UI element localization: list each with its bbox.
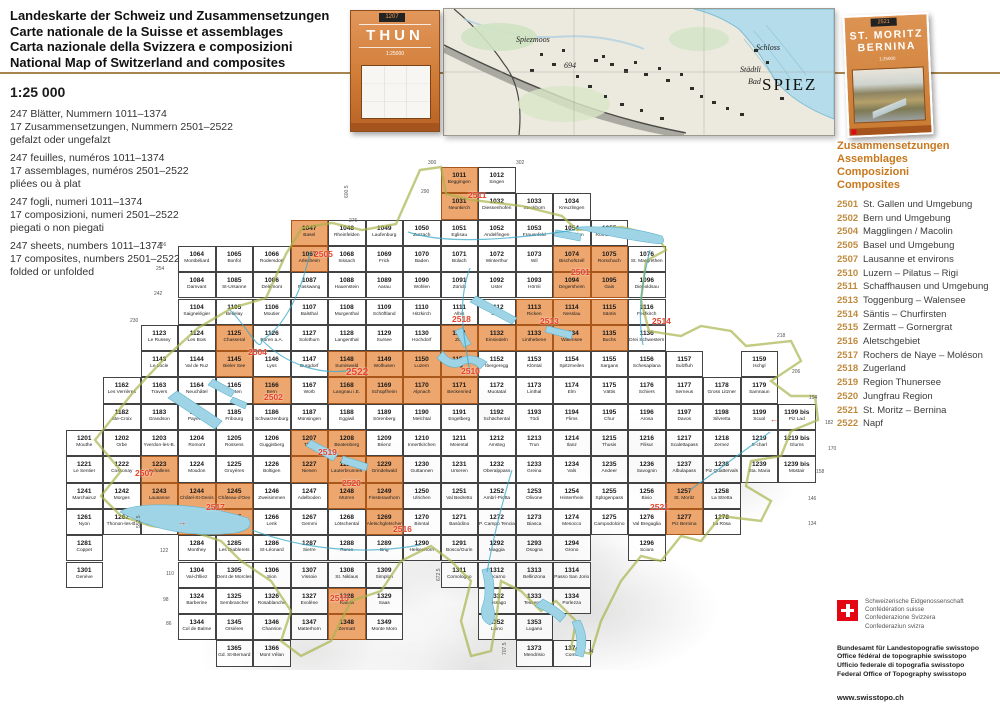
sheet-cell-1071: 1071Bülach bbox=[441, 246, 479, 272]
composite-list-item: 2514Säntis – Churfirsten bbox=[837, 308, 989, 322]
excerpt-graphics bbox=[444, 9, 834, 135]
sheet-number: 1213 bbox=[517, 435, 553, 443]
sheet-name: Hauenstein bbox=[329, 285, 365, 291]
swiss-flag-icon bbox=[851, 129, 856, 134]
sheet-cell-1105: 1105Bellelay bbox=[216, 299, 254, 325]
composite-name: Bern und Umgebung bbox=[863, 213, 951, 224]
sheet-number: 1247 bbox=[292, 488, 328, 496]
sheet-name: Lenk bbox=[254, 522, 290, 528]
sheet-cell-1254: 1254Hinterrhein bbox=[553, 483, 591, 509]
sheet-number: 1186 bbox=[254, 409, 290, 417]
sheet-cell-1373: 1373Mendrisio bbox=[516, 640, 554, 666]
composite-number: 2501 bbox=[837, 198, 863, 212]
sheet-name: Lötschental bbox=[329, 522, 365, 528]
sheet-name: Ricken bbox=[517, 312, 553, 318]
excerpt-place-label: SPIEZ bbox=[762, 75, 817, 95]
sheet-cell-1109: 1109Schöftland bbox=[366, 299, 404, 325]
sheet-cell-1187: 1187Münsingen bbox=[291, 404, 329, 430]
composite-number: 2519 bbox=[837, 376, 863, 390]
sheet-name: Langenthal bbox=[329, 338, 365, 344]
sheet-cell-1196: 1196Arosa bbox=[628, 404, 666, 430]
sheet-name: Bern bbox=[254, 390, 290, 396]
sheet-name: Col de Balme bbox=[179, 627, 215, 633]
sheet-number: 1191 bbox=[442, 409, 478, 417]
sheet-name: Beatenberg bbox=[329, 443, 365, 449]
sheet-cell-1296: 1296Sciora bbox=[628, 535, 666, 561]
sheet-number: 1261 bbox=[67, 514, 103, 522]
sheet-number: 1219 bis bbox=[779, 435, 815, 443]
cover-photo-mountain-river bbox=[852, 66, 926, 123]
sheet-name: Sumiswald bbox=[329, 364, 365, 370]
sheet-number: 1157 bbox=[667, 356, 703, 364]
sheet-cell-1167: 1167Worb bbox=[291, 377, 329, 403]
sheet-number: 1050 bbox=[404, 225, 440, 233]
sheet-cell-1221: 1221Le Sentier bbox=[66, 456, 104, 482]
sheet-number: 1130 bbox=[404, 330, 440, 338]
sheet-name: Bischofszell bbox=[554, 259, 590, 265]
sheet-cell-1275: 1275Campodolcino bbox=[591, 509, 629, 535]
sheet-number: 1217 bbox=[667, 435, 703, 443]
sheet-cell-1174: 1174Elm bbox=[553, 377, 591, 403]
composite-list-item: 2501St. Gallen und Umgebung bbox=[837, 198, 989, 212]
sheet-name: Neunkirch bbox=[442, 206, 478, 212]
sheet-number: 1287 bbox=[292, 540, 328, 548]
cover-number-tab: 1207 bbox=[379, 13, 405, 22]
sheet-number: 1131 bbox=[442, 330, 478, 338]
sheet-cell-1213: 1213Trun bbox=[516, 430, 554, 456]
sheet-name: Urseren bbox=[442, 469, 478, 475]
sheet-number: 1278 bbox=[704, 514, 740, 522]
sheet-cell-1227: 1227Niesen bbox=[291, 456, 329, 482]
sheet-name: Hitzkirch bbox=[404, 312, 440, 318]
sheet-number: 1296 bbox=[629, 540, 665, 548]
sheet-cell-1199: 1199Scuol bbox=[741, 404, 779, 430]
sheet-name: Uster bbox=[479, 285, 515, 291]
sheet-count-fr: 247 feuilles, numéros 1011–137417 assemb… bbox=[10, 152, 340, 191]
sheet-name: Val Bedretto bbox=[442, 496, 478, 502]
sheet-number: 1328 bbox=[329, 593, 365, 601]
sheet-name: Adelboden bbox=[292, 496, 328, 502]
sheet-name: Basel bbox=[292, 233, 328, 239]
sheet-cell-1114: 1114Nesslau bbox=[553, 299, 591, 325]
sheet-cell-1277: 1277Piz Bernina bbox=[666, 509, 704, 535]
sheet-number: 1192 bbox=[479, 409, 515, 417]
sheet-name: Sursee bbox=[367, 338, 403, 344]
sheet-cell-1070: 1070Baden bbox=[403, 246, 441, 272]
sheet-number: 1143 bbox=[142, 356, 178, 364]
sheet-name: Scalettapass bbox=[667, 443, 703, 449]
sheet-cell-1265: 1265Les Mosses bbox=[216, 509, 254, 535]
sheet-cell-1067: 1067Arlesheim bbox=[291, 246, 329, 272]
sheet-cell-1128: 1128Langenthal bbox=[328, 325, 366, 351]
sheet-cell-1087: 1087Passwang bbox=[291, 272, 329, 298]
sheet-name: Marchairuz bbox=[67, 496, 103, 502]
sheet-number: 1271 bbox=[442, 514, 478, 522]
sheet-name: Splügenpass bbox=[592, 496, 628, 502]
sheet-number: 1196 bbox=[629, 409, 665, 417]
sheet-number: 1127 bbox=[292, 330, 328, 338]
sheet-number: 1252 bbox=[479, 488, 515, 496]
sheet-cell-1270: 1270Binntal bbox=[403, 509, 441, 535]
sheet-cell-1231: 1231Urseren bbox=[441, 456, 479, 482]
sheet-cell-1150: 1150Luzern bbox=[403, 351, 441, 377]
composite-number: 2513 bbox=[837, 294, 863, 308]
composite-number: 2502 bbox=[837, 212, 863, 226]
sheet-cell-1258: 1258La Stretta bbox=[703, 483, 741, 509]
sheet-cell-1110: 1110Hitzkirch bbox=[403, 299, 441, 325]
cover-rule bbox=[359, 24, 431, 25]
sheet-name: Brissago bbox=[479, 601, 515, 607]
sheet-number: 1048 bbox=[329, 225, 365, 233]
sheet-cell-1125: 1125Chasseral bbox=[216, 325, 254, 351]
cover-bottom-band bbox=[351, 123, 439, 131]
sheet-cell-1089: 1089Aarau bbox=[366, 272, 404, 298]
sheet-name: Passo San Jorio bbox=[554, 575, 590, 581]
sheet-cell-1276: 1276Val Bregaglia bbox=[628, 509, 666, 535]
sheet-number: 1268 bbox=[329, 514, 365, 522]
sheet-number: 1332 bbox=[479, 593, 515, 601]
sheet-cell-1333: 1333Tesserete bbox=[516, 588, 554, 614]
sheet-name: Thun bbox=[292, 443, 328, 449]
sheet-cell-1130: 1130Hochdorf bbox=[403, 325, 441, 351]
composite-name: Luzern – Pilatus – Rigi bbox=[863, 268, 958, 279]
sheet-number: 1075 bbox=[592, 251, 628, 259]
sheet-cell-1047: 1047Basel bbox=[291, 220, 329, 246]
field bbox=[669, 27, 729, 51]
sheet-name: Vissoie bbox=[292, 575, 328, 581]
sheet-name: Zernez bbox=[704, 443, 740, 449]
sheet-cell-1053: 1053Frauenfeld bbox=[516, 220, 554, 246]
text-line: Ufficio federale di topografia swisstopo bbox=[837, 662, 997, 671]
sheet-cell-1218: 1218Zernez bbox=[703, 430, 741, 456]
sheet-cell-1086: 1086Delémont bbox=[253, 272, 291, 298]
sheet-cell-1349: 1349Monte Moro bbox=[366, 614, 404, 640]
sheet-cell-1197: 1197Davos bbox=[666, 404, 704, 430]
sheet-cell-1209: 1209Brienz bbox=[366, 430, 404, 456]
sheet-cell-1301: 1301Genève bbox=[66, 562, 104, 588]
sheet-number: 1265 bbox=[217, 514, 253, 522]
sheet-name: Vals bbox=[554, 469, 590, 475]
sheet-cell-1278: 1278La Rösa bbox=[703, 509, 741, 535]
sheet-cell-1129: 1129Sursee bbox=[366, 325, 404, 351]
sheet-cell-1208: 1208Beatenberg bbox=[328, 430, 366, 456]
composite-name: Napf bbox=[863, 418, 883, 429]
sheet-number: 1313 bbox=[517, 567, 553, 575]
sheet-number: 1199 bbox=[742, 409, 778, 417]
sheet-number: 1113 bbox=[517, 304, 553, 312]
sheet-cell-1185: 1185Fribourg bbox=[216, 404, 254, 430]
sheet-name: Steckborn bbox=[517, 206, 553, 212]
sheet-name: Schüpfheim bbox=[367, 390, 403, 396]
sheet-cell-1198: 1198Silvretta bbox=[703, 404, 741, 430]
sheet-number: 1212 bbox=[479, 435, 515, 443]
sheet-name: La Rösa bbox=[704, 522, 740, 528]
sheet-number: 1266 bbox=[254, 514, 290, 522]
sheet-name: Piz Lad bbox=[779, 417, 815, 423]
text-line: Bundesamt für Landestopografie swisstopo bbox=[837, 645, 997, 654]
sheet-name: Gross Litzner bbox=[704, 390, 740, 396]
sheet-name: Barberine bbox=[179, 601, 215, 607]
text-line: Composites bbox=[837, 179, 949, 192]
map-excerpt-spiez: Spiezmoos694SchlossStädtliBadSPIEZ bbox=[443, 8, 835, 136]
sheet-cell-1348: 1348Zermatt bbox=[328, 614, 366, 640]
sheet-name: P. Campo Tencia bbox=[479, 522, 515, 528]
sheet-cell-1255: 1255Splügenpass bbox=[591, 483, 629, 509]
composite-name: Säntis – Churfirsten bbox=[863, 309, 946, 320]
sheet-name: Neuchâtel bbox=[179, 390, 215, 396]
sheet-name: Binntal bbox=[404, 522, 440, 528]
sheet-cell-1294: 1294Grono bbox=[553, 535, 591, 561]
sheet-number: 1272 bbox=[479, 514, 515, 522]
sheet-cell-1202: 1202Orbe bbox=[103, 430, 141, 456]
sheet-cell-1072: 1072Winterthur bbox=[478, 246, 516, 272]
sheet-cell-1219: 1219S-charl bbox=[741, 430, 779, 456]
sheet-name: Guggisberg bbox=[254, 443, 290, 449]
sheet-name: Piz Quattervals bbox=[704, 469, 740, 475]
sheet-cell-1235: 1235Andeer bbox=[591, 456, 629, 482]
sheet-cell-1126: 1126Büren a.A. bbox=[253, 325, 291, 351]
sheet-cell-1256: 1256Bivio bbox=[628, 483, 666, 509]
sheet-name: Sargans bbox=[592, 364, 628, 370]
sheet-cell-1228: 1228Lauterbrunnen bbox=[328, 456, 366, 482]
sheet-cell-1241: 1241Marchairuz bbox=[66, 483, 104, 509]
sheet-name: Gd. St-Bernard bbox=[217, 653, 253, 659]
sheet-cell-1344: 1344Col de Balme bbox=[178, 614, 216, 640]
sheet-number: 1202 bbox=[104, 435, 140, 443]
sheet-name: Eglisau bbox=[442, 233, 478, 239]
sheet-name: Solothurn bbox=[292, 338, 328, 344]
sheet-cell-1210: 1210Innertkirchen bbox=[403, 430, 441, 456]
sheet-name: Winterthur bbox=[479, 259, 515, 265]
composite-list-item: 2520Jungfrau Region bbox=[837, 390, 989, 404]
sheet-name: St. Niklaus bbox=[329, 575, 365, 581]
sheet-cell-1263: 1263Évian-les-B. bbox=[141, 509, 179, 535]
sheet-cell-1224: 1224Moudon bbox=[178, 456, 216, 482]
sheet-cell-1054: 1054Weinfelden bbox=[553, 220, 591, 246]
sheet-number: 1105 bbox=[217, 304, 253, 312]
sheet-cell-1226: 1226Boltigen bbox=[253, 456, 291, 482]
sheet-cell-1214: 1214Ilanz bbox=[553, 430, 591, 456]
sheet-cell-1290: 1290Helsenhorn bbox=[403, 535, 441, 561]
sheet-name: Wil bbox=[517, 259, 553, 265]
sheet-cell-1182: 1182Ste-Croix bbox=[103, 404, 141, 430]
sheet-name: Travers bbox=[142, 390, 178, 396]
swisstopo-logo-block: Schweizerische EidgenossenschaftConfédér… bbox=[837, 598, 997, 702]
sheet-name: Hochdorf bbox=[404, 338, 440, 344]
sheet-name: Thusis bbox=[592, 443, 628, 449]
sheet-cell-1328: 1328Randa bbox=[328, 588, 366, 614]
sheet-number: 1065 bbox=[217, 251, 253, 259]
sheet-name: Weinfelden bbox=[554, 233, 590, 239]
sheet-name: Lugano bbox=[517, 627, 553, 633]
composite-name: Toggenburg – Walensee bbox=[863, 295, 966, 306]
sheet-cell-1172: 1172Muotatal bbox=[478, 377, 516, 403]
sheet-number: 1219 bbox=[742, 435, 778, 443]
sheet-number: 1289 bbox=[367, 540, 403, 548]
sheet-cell-1284: 1284Monthey bbox=[178, 535, 216, 561]
sheet-number: 1182 bbox=[104, 409, 140, 417]
sheet-cell-1287: 1287Sierre bbox=[291, 535, 329, 561]
cover-number-tab: 2521 bbox=[871, 18, 897, 27]
sheet-name: Chasseral bbox=[217, 338, 253, 344]
sheet-number: 1308 bbox=[329, 567, 365, 575]
sheet-cell-1092: 1092Uster bbox=[478, 272, 516, 298]
sheet-number: 1286 bbox=[254, 540, 290, 548]
sheet-cell-1112: 1112Stäfa bbox=[478, 299, 516, 325]
sheet-name: Orsières bbox=[217, 627, 253, 633]
sheet-number: 1307 bbox=[292, 567, 328, 575]
sheet-number: 1267 bbox=[292, 514, 328, 522]
sheet-number: 1347 bbox=[292, 619, 328, 627]
composite-number: 2504 bbox=[837, 225, 863, 239]
composite-number: 2511 bbox=[837, 280, 863, 294]
sheet-name: Maggia bbox=[479, 548, 515, 554]
sheet-number: 1106 bbox=[254, 304, 290, 312]
sheet-number: 1257 bbox=[667, 488, 703, 496]
sheet-number: 1243 bbox=[142, 488, 178, 496]
sheet-cell-1131: 1131Zug bbox=[441, 325, 479, 351]
sheet-number: 1242 bbox=[104, 488, 140, 496]
sheet-name: Chanrion bbox=[254, 627, 290, 633]
sheet-name: Olivone bbox=[517, 496, 553, 502]
sheet-number: 1214 bbox=[554, 435, 590, 443]
sheet-number: 1285 bbox=[217, 540, 253, 548]
sheet-name: Gruyères bbox=[217, 469, 253, 475]
composite-name: Aletschgebiet bbox=[863, 336, 920, 347]
sheet-name: Évian-les-B. bbox=[142, 522, 178, 528]
sheet-name: Grindelwald bbox=[367, 469, 403, 475]
sheet-cell-1111: 1111Albis bbox=[441, 299, 479, 325]
sheet-number: 1248 bbox=[329, 488, 365, 496]
sheet-name: Osogna bbox=[517, 548, 553, 554]
sheet-number: 1209 bbox=[367, 435, 403, 443]
sheet-number: 1352 bbox=[479, 619, 515, 627]
sheet-name: S-charl bbox=[742, 443, 778, 449]
sheet-cell-1179: 1179Samnaun bbox=[741, 377, 779, 403]
sheet-cell-1136: 1136Drei Schwestern bbox=[628, 325, 666, 351]
text-line: Schweizerische Eidgenossenschaft bbox=[865, 598, 997, 606]
map-cover-stmoritz: 2521 ST. MORITZ BERNINA 1:25000 bbox=[842, 12, 933, 138]
sheet-name: Ischgl bbox=[742, 364, 778, 370]
excerpt-place-label: Schloss bbox=[756, 43, 780, 52]
sheet-cell-1332: 1332Brissago bbox=[478, 588, 516, 614]
sheet-name: Schöftland bbox=[367, 312, 403, 318]
excerpt-place-label: Städtli bbox=[740, 65, 761, 74]
sheet-name: Piz Bernina bbox=[667, 522, 703, 528]
sheet-number: 1110 bbox=[404, 304, 440, 312]
sheet-name: Ibergeregg bbox=[479, 364, 515, 370]
sheet-cell-1293: 1293Osogna bbox=[516, 535, 554, 561]
sheet-cell-1155: 1155Sargans bbox=[591, 351, 629, 377]
sheet-name: Biasca bbox=[517, 522, 553, 528]
sheet-cell-1171: 1171Beckenried bbox=[441, 377, 479, 403]
sheet-number: 1070 bbox=[404, 251, 440, 259]
sheet-name: Samnaun bbox=[742, 390, 778, 396]
sheet-cell-1246: 1246Zweisimmen bbox=[253, 483, 291, 509]
sheet-name: Fribourg bbox=[217, 417, 253, 423]
composite-number: 2507 bbox=[837, 253, 863, 267]
sheet-number: 1253 bbox=[517, 488, 553, 496]
sheet-number: 1208 bbox=[329, 435, 365, 443]
sheet-name: Büren a.A. bbox=[254, 338, 290, 344]
composite-list-item: 2522Napf bbox=[837, 417, 989, 431]
sheet-name: Rigi bbox=[442, 364, 478, 370]
sheet-cell-1314: 1314Passo San Jorio bbox=[553, 562, 591, 588]
sheet-number: 1150 bbox=[404, 356, 440, 364]
sheet-number: 1132 bbox=[479, 330, 515, 338]
sheet-name: Singen bbox=[479, 180, 515, 186]
sheet-name: Genève bbox=[67, 575, 103, 581]
sheet-cell-1159: 1159Ischgl bbox=[741, 351, 779, 377]
sheet-name: Cossonay bbox=[104, 469, 140, 475]
sheet-cell-1069: 1069Frick bbox=[366, 246, 404, 272]
sheet-name: Einsiedeln bbox=[479, 338, 515, 344]
composite-name: Rochers de Naye – Moléson bbox=[863, 350, 983, 361]
sheet-name: Feldkirch bbox=[629, 312, 665, 318]
sheet-name: Serneus bbox=[667, 390, 703, 396]
text-line: Landeskarte der Schweiz und Zusammensetz… bbox=[10, 8, 350, 24]
sheet-name: Klöntal bbox=[517, 364, 553, 370]
sheet-name: Matterhorn bbox=[292, 627, 328, 633]
sheet-number: 1055 bbox=[592, 225, 628, 233]
sheet-name: Bellinzona bbox=[517, 575, 553, 581]
composite-list-item: 2507Lausanne et environs bbox=[837, 253, 989, 267]
sheet-name: Linthebene bbox=[517, 338, 553, 344]
composite-name: Jungfrau Region bbox=[863, 391, 933, 402]
sheet-number: 1290 bbox=[404, 540, 440, 548]
sheet-cell-1192: 1192Schächental bbox=[478, 404, 516, 430]
sheet-cell-1065: 1065Bonfol bbox=[216, 246, 254, 272]
sheet-number: 1270 bbox=[404, 514, 440, 522]
sheet-name: Burgdorf bbox=[292, 364, 328, 370]
sheet-cell-1074: 1074Bischofszell bbox=[553, 246, 591, 272]
sheet-name: Greina bbox=[517, 469, 553, 475]
sheet-cell-1189: 1189Sörenberg bbox=[366, 404, 404, 430]
sheet-number: 1262 bbox=[104, 514, 140, 522]
sheet-cell-1124: 1124Les Bois bbox=[178, 325, 216, 351]
sheet-cell-1207: 1207Thun bbox=[291, 430, 329, 456]
sheet-name: Basòdino bbox=[442, 522, 478, 528]
sheet-name: Gemmi bbox=[292, 522, 328, 528]
sheet-number: 1129 bbox=[367, 330, 403, 338]
composite-name: Lausanne et environs bbox=[863, 254, 954, 265]
sheet-cell-1216: 1216Filisur bbox=[628, 430, 666, 456]
sheet-number: 1333 bbox=[517, 593, 553, 601]
sheet-name: Albis bbox=[442, 312, 478, 318]
sheet-number: 1324 bbox=[179, 593, 215, 601]
sheet-number: 1189 bbox=[367, 409, 403, 417]
sheet-name: Trun bbox=[517, 443, 553, 449]
sheet-cell-1169: 1169Schüpfheim bbox=[366, 377, 404, 403]
sheet-number: 1074 bbox=[554, 251, 590, 259]
sheet-name: Lauterbrunnen bbox=[329, 469, 365, 475]
sheet-cell-1347: 1347Matterhorn bbox=[291, 614, 329, 640]
sheet-number: 1275 bbox=[592, 514, 628, 522]
sheet-cell-1163: 1163Travers bbox=[141, 377, 179, 403]
composite-number: 2515 bbox=[837, 321, 863, 335]
sheet-name: Chur bbox=[592, 417, 628, 423]
sheet-name: Zug bbox=[442, 338, 478, 344]
sheet-cell-1249: 1249Finsteraarhorn bbox=[366, 483, 404, 509]
sheet-number: 1090 bbox=[404, 277, 440, 285]
sheet-cell-1234: 1234Vals bbox=[553, 456, 591, 482]
sheet-number: 1126 bbox=[254, 330, 290, 338]
sheet-cell-1052: 1052Andelfingen bbox=[478, 220, 516, 246]
sheet-cell-1229: 1229Grindelwald bbox=[366, 456, 404, 482]
sheet-cell-1091: 1091Zürich bbox=[441, 272, 479, 298]
sheet-name: Baden bbox=[404, 259, 440, 265]
sheet-name: Rorschach bbox=[592, 259, 628, 265]
